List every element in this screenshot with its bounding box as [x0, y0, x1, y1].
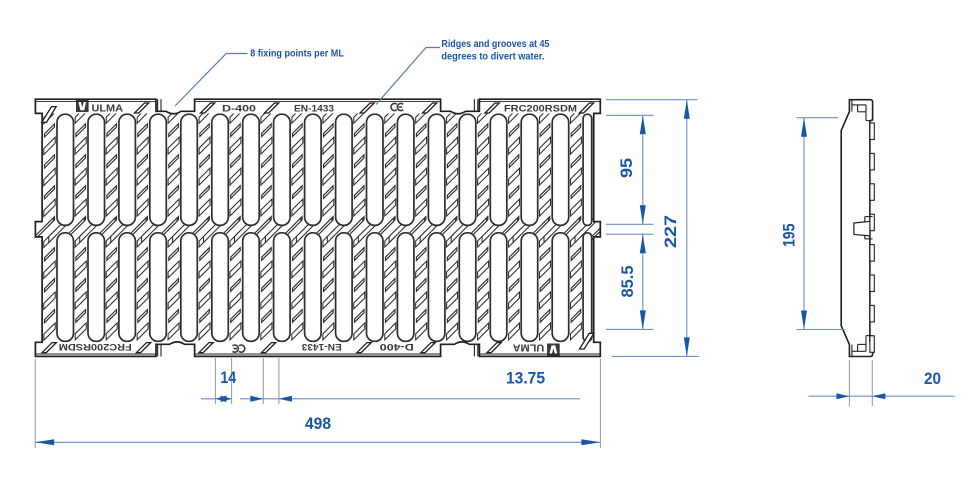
svg-text:95: 95 — [617, 158, 636, 178]
svg-text:85.5: 85.5 — [618, 266, 637, 298]
svg-text:FRC200RSDM: FRC200RSDM — [59, 341, 132, 352]
svg-text:13.75: 13.75 — [506, 369, 545, 388]
svg-text:498: 498 — [305, 414, 331, 433]
svg-text:D-400: D-400 — [380, 341, 414, 352]
svg-text:227: 227 — [661, 215, 680, 248]
svg-text:Ridges and grooves at 45: Ridges and grooves at 45 — [441, 39, 549, 50]
svg-text:20: 20 — [924, 369, 941, 388]
svg-text:195: 195 — [780, 224, 799, 248]
svg-text:ULMA: ULMA — [92, 103, 124, 114]
svg-text:degrees to divert water.: degrees to divert water. — [441, 51, 544, 62]
svg-text:ULMA: ULMA — [513, 341, 545, 352]
svg-text:EN-1433: EN-1433 — [294, 104, 334, 115]
svg-text:14: 14 — [220, 368, 236, 387]
svg-text:D-400: D-400 — [222, 104, 256, 115]
svg-text:EN-1433: EN-1433 — [302, 341, 342, 352]
svg-text:8 fixing points per ML: 8 fixing points per ML — [250, 49, 344, 60]
svg-text:FRC200RSDM: FRC200RSDM — [504, 104, 577, 115]
